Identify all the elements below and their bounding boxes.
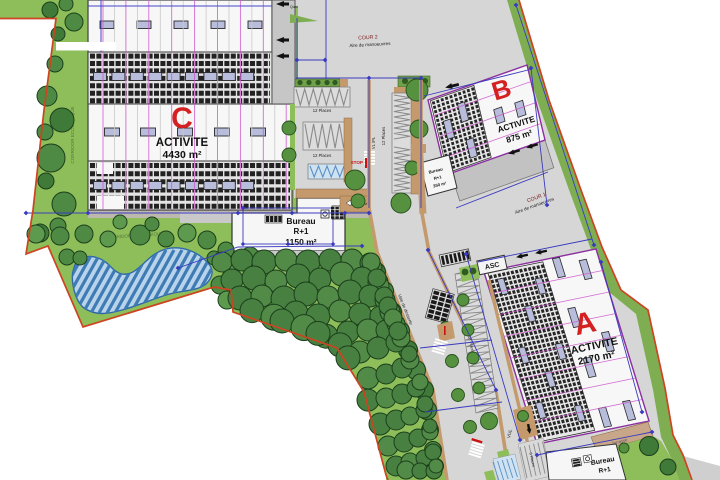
- svg-text:ACTIVITE: ACTIVITE: [156, 137, 209, 149]
- svg-text:12 Places: 12 Places: [313, 108, 331, 113]
- svg-text:12 Places: 12 Places: [313, 153, 331, 158]
- svg-text:1150 m²: 1150 m²: [285, 237, 316, 247]
- svg-text:STOP: STOP: [351, 160, 363, 165]
- svg-text:Quai: Quai: [290, 5, 298, 9]
- svg-text:Bureau: Bureau: [286, 216, 315, 226]
- svg-text:C: C: [171, 102, 193, 135]
- svg-text:VL /PL: VL /PL: [371, 136, 376, 149]
- svg-text:COUR 2: COUR 2: [358, 34, 378, 41]
- svg-text:4430 m²: 4430 m²: [162, 149, 202, 161]
- svg-text:12 Places: 12 Places: [381, 127, 386, 145]
- svg-text:R+1: R+1: [294, 227, 309, 236]
